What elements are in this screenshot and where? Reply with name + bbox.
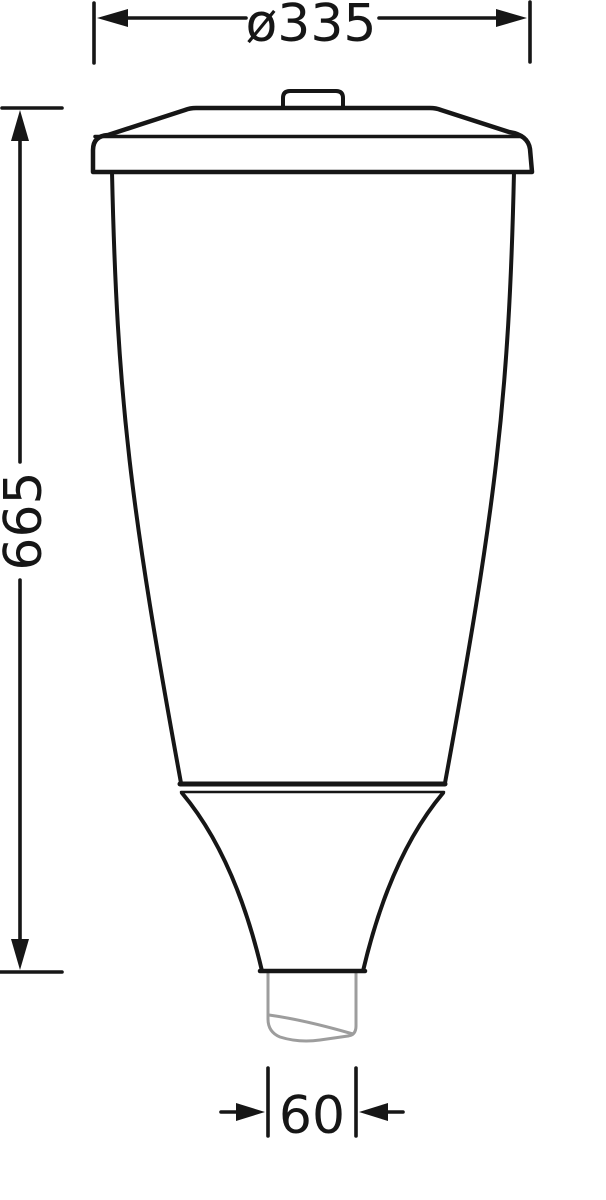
arrowhead-right-icon	[236, 1103, 265, 1121]
spigot-cut-edge	[269, 1015, 353, 1034]
dim-label-diameter: ø335	[245, 0, 376, 54]
dimension-spigot-width: 60	[221, 1068, 403, 1146]
spigot-tube	[268, 973, 356, 1041]
arrowhead-right-icon	[496, 9, 527, 27]
lid-contour	[93, 108, 532, 172]
arrowhead-left-icon	[97, 9, 128, 27]
spigot-left-edge-and-bottom-rim	[268, 973, 348, 1041]
funnel-right-edge	[363, 793, 443, 971]
dimension-diameter-top: ø335	[94, 0, 530, 63]
arrowhead-left-icon	[359, 1103, 388, 1121]
arrowhead-up-icon	[11, 110, 29, 141]
dimension-height-left: 665	[0, 108, 62, 972]
body-left-edge	[112, 172, 181, 783]
dimension-drawing-canvas: ø335 665 60	[0, 0, 606, 1200]
dim-label-height: 665	[0, 471, 54, 570]
spigot-right-edge	[348, 973, 356, 1036]
funnel-left-edge	[182, 793, 262, 971]
fixture-outline	[93, 91, 532, 971]
dim-label-spigot-width: 60	[279, 1086, 345, 1146]
technical-drawing-page: ø335 665 60	[0, 0, 606, 1200]
body-right-edge	[445, 172, 514, 783]
arrowhead-down-icon	[11, 939, 29, 970]
